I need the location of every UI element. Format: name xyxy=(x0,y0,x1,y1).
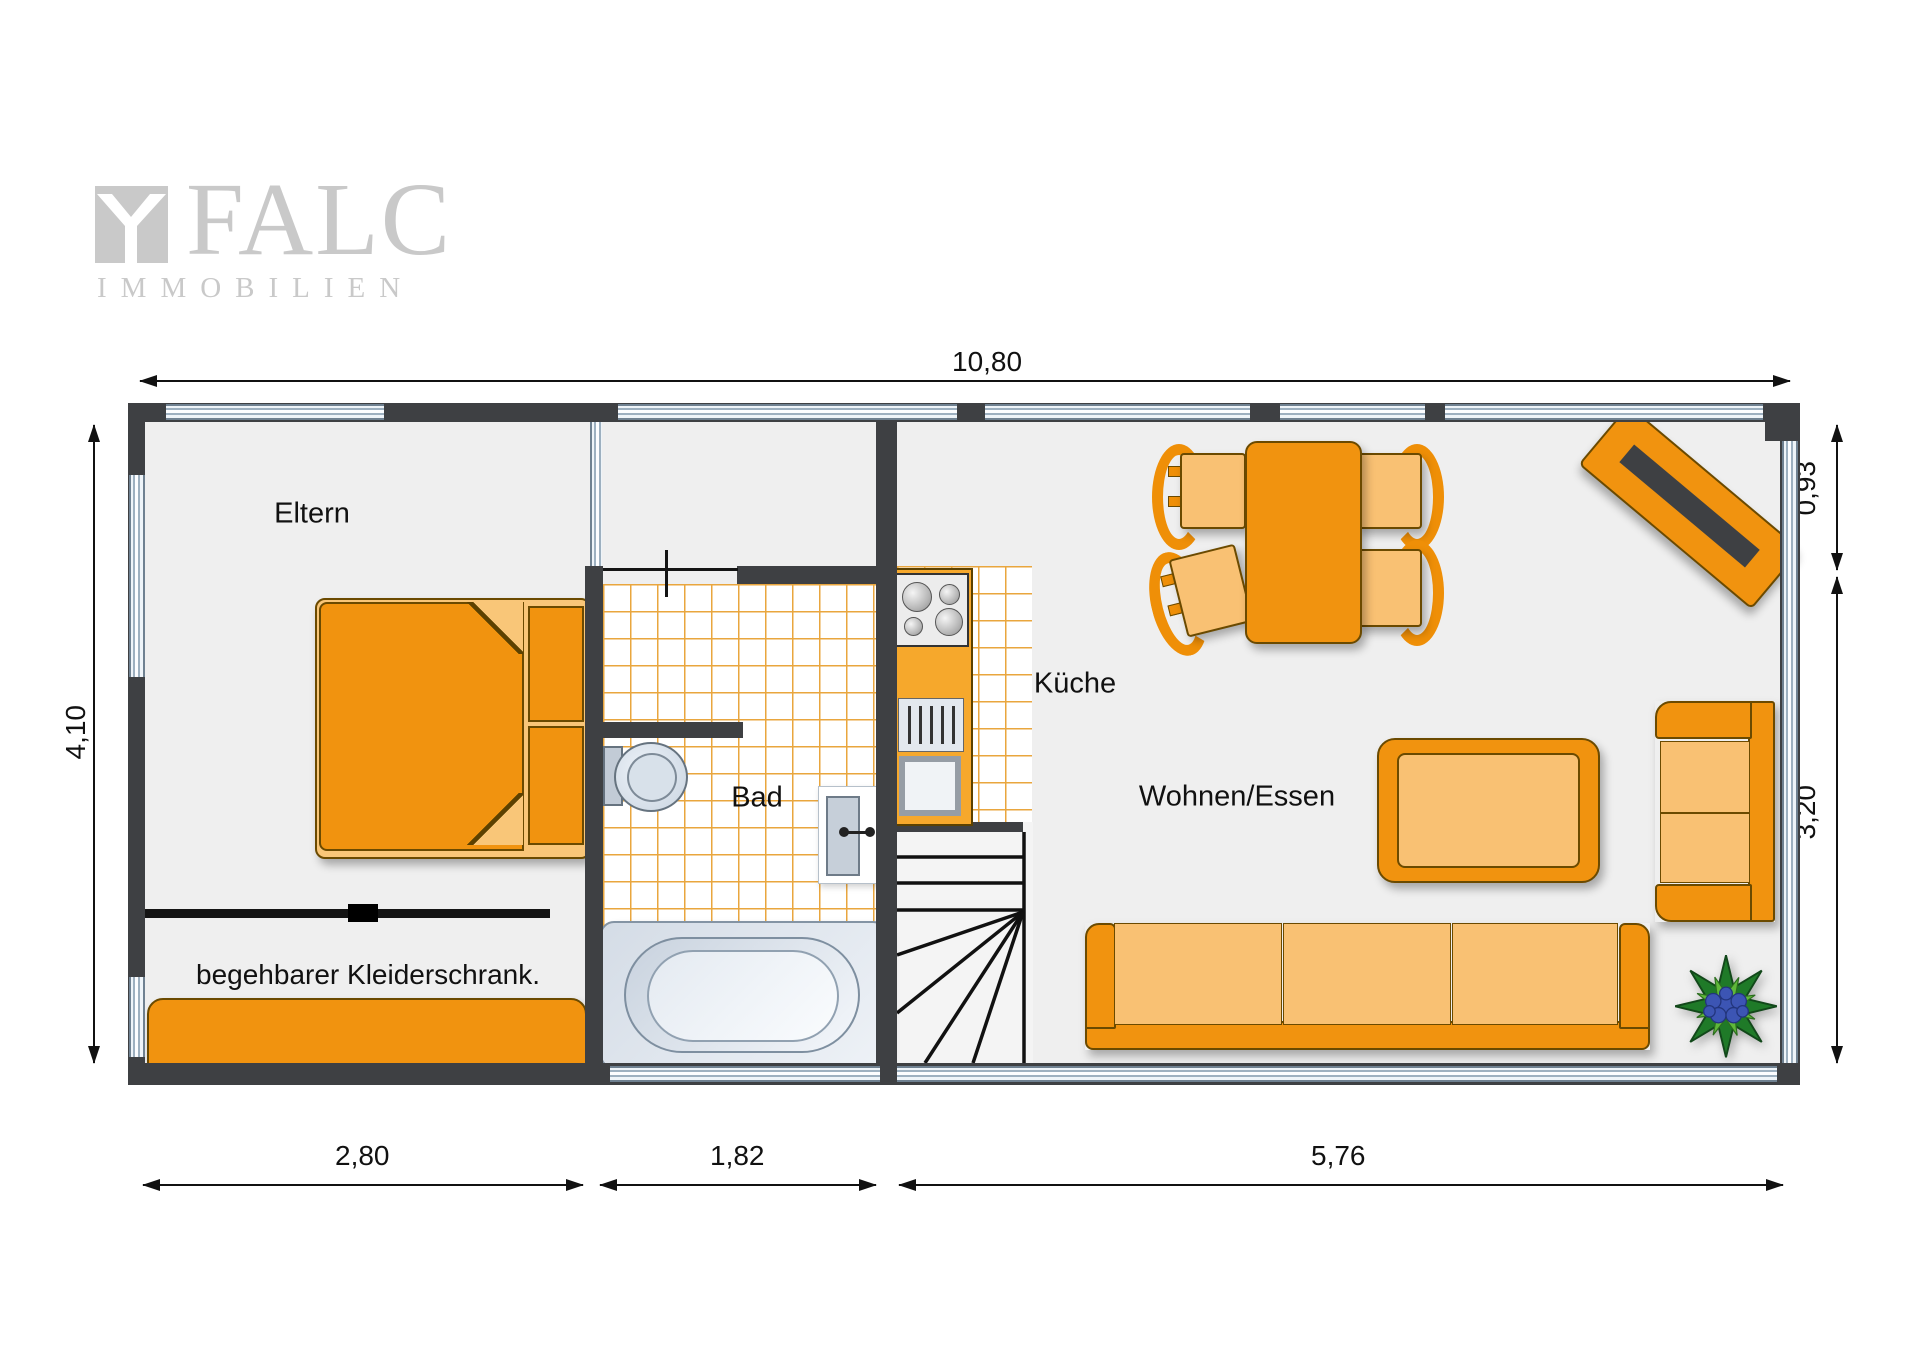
kitchen-unit xyxy=(891,568,973,826)
sofa-armrest xyxy=(1655,884,1752,922)
dining-chair-seat xyxy=(1180,453,1246,529)
staircase xyxy=(897,822,1033,1063)
dimension-bottom-middle: 1,82 xyxy=(600,1140,876,1196)
grill-bar xyxy=(908,706,911,744)
dimension-right-top: 0,93 xyxy=(1824,425,1864,570)
sofa-cushion xyxy=(1114,923,1282,1025)
sofa-3seat xyxy=(1085,923,1650,1050)
window-right-1 xyxy=(1782,441,1798,1063)
stove xyxy=(895,573,969,647)
logo-subtitle-text: IMMOBILIEN xyxy=(97,272,414,305)
room-label-kueche: Küche xyxy=(1034,668,1116,701)
bathroom-door-swing-tick xyxy=(665,550,668,597)
toilet-bowl-inner xyxy=(627,753,677,802)
plant-icon xyxy=(1675,950,1777,1060)
bed-pillow xyxy=(528,606,584,722)
window-top-4 xyxy=(1280,404,1425,420)
sofa-armrest xyxy=(1085,923,1116,1029)
stove-burner xyxy=(939,584,960,605)
grill-bar xyxy=(919,706,922,744)
glass-partition xyxy=(590,422,602,566)
falc-logo-mark-icon xyxy=(95,186,168,263)
staircase-steps xyxy=(897,832,1033,1063)
wardrobe xyxy=(147,998,587,1065)
dining-table xyxy=(1245,441,1362,644)
window-top-1 xyxy=(166,404,384,420)
bathroom-sink xyxy=(818,786,882,884)
sofa-back xyxy=(1748,701,1775,922)
kitchen-west-wall xyxy=(876,422,897,1063)
dimension-left-height: 4,10 xyxy=(70,425,110,1063)
sink-faucet-knob xyxy=(839,827,849,837)
dimension-bottom-right: 5,76 xyxy=(899,1140,1783,1196)
dimension-left-height-label: 4,10 xyxy=(60,705,92,760)
bathroom-west-wall xyxy=(585,566,603,1063)
bed-pillow xyxy=(528,726,584,845)
coffee-table xyxy=(1377,738,1600,883)
window-top-3 xyxy=(985,404,1250,420)
kitchen-sink xyxy=(899,756,961,816)
sink-faucet-spout xyxy=(865,827,875,837)
room-label-wohnen: Wohnen/Essen xyxy=(1139,781,1335,814)
kitchen-grill xyxy=(898,698,964,752)
room-label-bad: Bad xyxy=(731,782,783,815)
window-left-1 xyxy=(129,475,145,677)
sofa-cushion xyxy=(1283,923,1451,1025)
stove-burner xyxy=(935,608,963,636)
sofa-cushion xyxy=(1452,923,1618,1025)
grill-bar xyxy=(941,706,944,744)
stove-burner xyxy=(902,582,932,612)
room-label-kleiderschrank: begehbarer Kleiderschrank. xyxy=(196,959,540,991)
window-top-2 xyxy=(618,404,957,420)
room-label-eltern: Eltern xyxy=(274,498,350,531)
window-bottom-1 xyxy=(610,1066,880,1082)
bathtub-basin xyxy=(647,950,839,1042)
dimension-bottom-left-label: 2,80 xyxy=(335,1140,390,1172)
grill-bar xyxy=(930,706,933,744)
sofa-armrest xyxy=(1655,701,1752,739)
floorplan-page: FALC IMMOBILIEN 10,80 4,10 0,93 3,20 2,8… xyxy=(0,0,1920,1357)
closet-divider-wall xyxy=(145,909,348,918)
dimension-right-bottom: 3,20 xyxy=(1824,577,1864,1063)
dimension-bottom-left: 2,80 xyxy=(143,1140,583,1196)
sofa-2seat xyxy=(1655,701,1775,922)
closet-divider-wall xyxy=(378,909,550,918)
window-left-2 xyxy=(129,977,145,1057)
corner-pillar-top-right xyxy=(1765,403,1800,441)
sofa-cushion xyxy=(1660,741,1750,813)
sofa-cushion xyxy=(1660,813,1750,883)
dimension-total-width: 10,80 xyxy=(140,346,1790,392)
coffee-table-top xyxy=(1397,753,1580,868)
dining-chair-seat xyxy=(1356,549,1422,627)
bathtub xyxy=(600,921,887,1069)
grill-bar xyxy=(952,706,955,744)
dimension-bottom-right-label: 5,76 xyxy=(1311,1140,1366,1172)
sofa-back xyxy=(1085,1021,1650,1050)
logo-brand-text: FALC xyxy=(186,168,452,272)
dimension-bottom-middle-label: 1,82 xyxy=(710,1140,765,1172)
dimension-total-width-label: 10,80 xyxy=(952,346,1022,378)
bathroom-top-wall xyxy=(737,566,876,584)
toilet-partition-wall xyxy=(603,722,743,738)
window-top-5 xyxy=(1445,404,1763,420)
double-bed xyxy=(315,598,591,859)
bed-fold xyxy=(467,602,523,654)
closet-sliding-door xyxy=(348,904,378,922)
bathroom-door-line xyxy=(603,568,738,571)
window-bottom-2 xyxy=(897,1066,1777,1082)
dining-chair-seat xyxy=(1356,453,1422,529)
stove-burner xyxy=(904,617,923,636)
bed-fold xyxy=(467,793,523,845)
sofa-armrest xyxy=(1619,923,1650,1029)
